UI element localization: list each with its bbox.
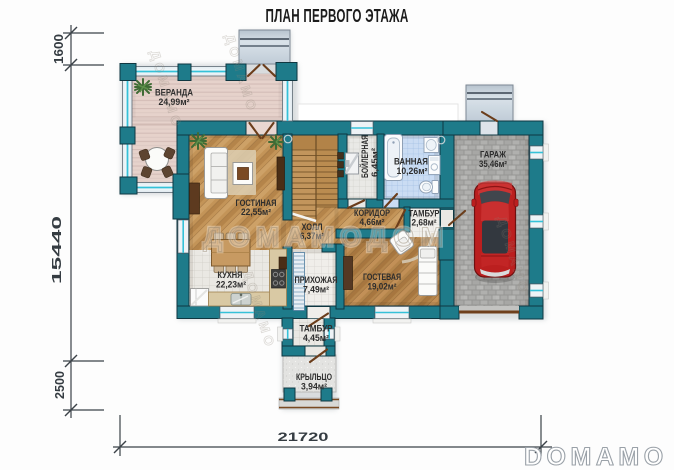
svg-text:2500: 2500 [53,371,67,399]
svg-text:DOMAMO: DOMAMO [524,443,668,470]
svg-text:6,45м²: 6,45м² [370,148,380,177]
svg-text:3,94м²: 3,94м² [301,382,327,392]
svg-text:22,23м²: 22,23м² [216,280,246,290]
svg-text:19,02м²: 19,02м² [368,282,397,292]
svg-text:1600: 1600 [52,34,66,64]
svg-text:ДОМАМОДОМ: ДОМАМОДОМ [203,222,450,252]
svg-text:10,26м²: 10,26м² [397,166,428,176]
svg-text:ПЛАН ПЕРВОГО ЭТАЖА: ПЛАН ПЕРВОГО ЭТАЖА [265,6,408,26]
svg-text:35,46м²: 35,46м² [479,159,507,169]
svg-text:15440: 15440 [49,216,64,284]
svg-text:22,55м²: 22,55м² [241,207,271,217]
svg-text:4,45м²: 4,45м² [303,333,329,343]
svg-text:БОЙЛЕРНАЯ: БОЙЛЕРНАЯ [359,135,370,178]
svg-text:7,49м²: 7,49м² [303,285,329,295]
svg-text:21720: 21720 [278,430,329,444]
